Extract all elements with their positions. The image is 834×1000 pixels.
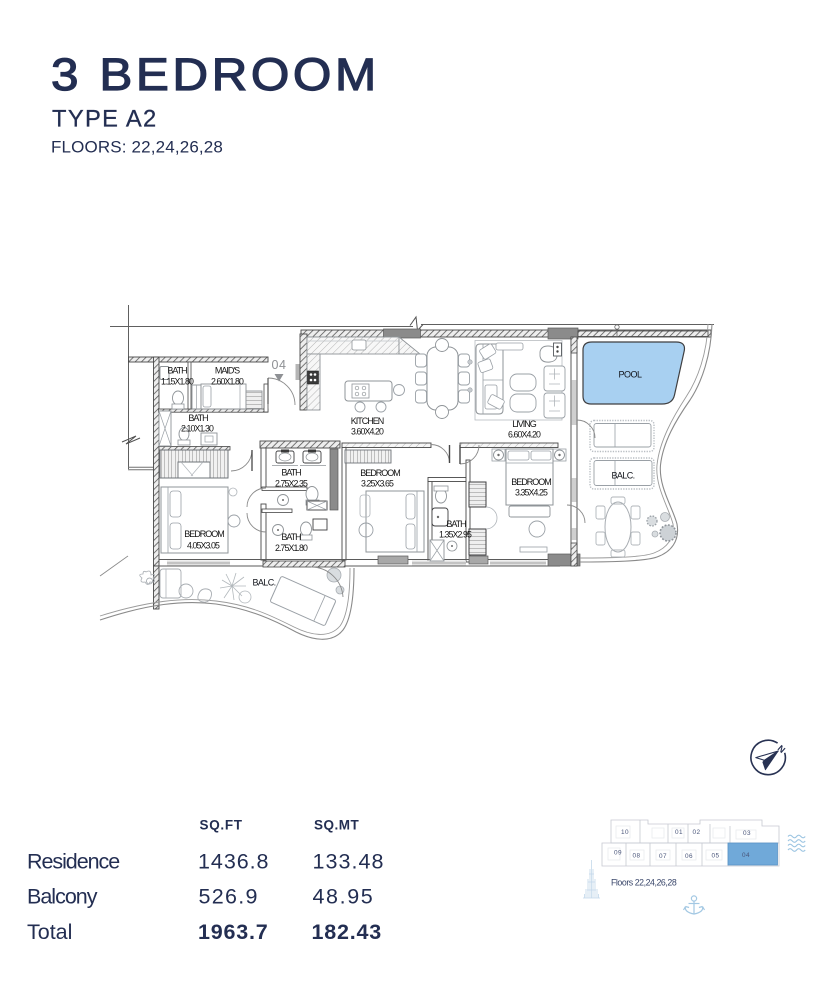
svg-text:6.60X4.20: 6.60X4.20 xyxy=(508,430,541,440)
svg-text:01: 01 xyxy=(675,829,683,836)
svg-text:1436.8: 1436.8 xyxy=(198,850,269,874)
svg-text:Residence: Residence xyxy=(27,850,119,874)
svg-text:3 BEDROOM: 3 BEDROOM xyxy=(51,50,380,100)
svg-text:LIVING: LIVING xyxy=(512,419,537,429)
svg-text:10: 10 xyxy=(621,829,629,836)
svg-text:2.75X1.80: 2.75X1.80 xyxy=(275,543,308,553)
svg-text:BALC.: BALC. xyxy=(611,471,634,481)
svg-text:3.60X4.20: 3.60X4.20 xyxy=(351,427,384,437)
svg-text:1.35X2.95: 1.35X2.95 xyxy=(439,530,472,540)
svg-text:09: 09 xyxy=(614,850,622,857)
svg-text:BEDROOM: BEDROOM xyxy=(511,477,551,487)
svg-text:04: 04 xyxy=(272,358,287,372)
svg-text:133.48: 133.48 xyxy=(313,850,385,874)
svg-text:FLOORS: 22,24,26,28: FLOORS: 22,24,26,28 xyxy=(51,138,223,157)
svg-text:3.25X3.65: 3.25X3.65 xyxy=(361,479,394,489)
svg-text:4.05X3.05: 4.05X3.05 xyxy=(187,541,220,551)
svg-text:BATH: BATH xyxy=(281,532,301,542)
svg-text:POOL: POOL xyxy=(618,370,642,380)
svg-text:06: 06 xyxy=(685,853,693,860)
svg-text:48.95: 48.95 xyxy=(313,885,375,909)
svg-text:3.35X4.25: 3.35X4.25 xyxy=(515,488,548,498)
svg-text:2.10X1.30: 2.10X1.30 xyxy=(181,424,214,434)
svg-text:Total: Total xyxy=(27,920,72,944)
svg-text:1963.7: 1963.7 xyxy=(198,920,269,944)
svg-text:SQ.FT: SQ.FT xyxy=(200,818,243,833)
svg-text:MAID'S: MAID'S xyxy=(215,366,240,376)
svg-text:SQ.MT: SQ.MT xyxy=(314,818,360,833)
svg-text:04: 04 xyxy=(742,852,750,859)
svg-text:2.60X1.80: 2.60X1.80 xyxy=(211,377,244,387)
svg-text:05: 05 xyxy=(712,853,720,860)
svg-text:BATH: BATH xyxy=(167,366,187,376)
svg-text:BATH: BATH xyxy=(446,519,466,529)
svg-text:BEDROOM: BEDROOM xyxy=(184,529,224,539)
svg-text:08: 08 xyxy=(633,853,641,860)
svg-text:BALC.: BALC. xyxy=(252,578,275,588)
svg-text:182.43: 182.43 xyxy=(312,920,383,944)
svg-text:02: 02 xyxy=(693,829,701,836)
svg-text:TYPE A2: TYPE A2 xyxy=(52,107,158,133)
svg-text:BEDROOM: BEDROOM xyxy=(360,468,400,478)
svg-text:526.9: 526.9 xyxy=(199,885,259,909)
svg-text:2.75X2.35: 2.75X2.35 xyxy=(275,479,308,489)
svg-text:BATH: BATH xyxy=(281,468,301,478)
svg-text:BATH: BATH xyxy=(188,413,208,423)
svg-text:KITCHEN: KITCHEN xyxy=(351,416,384,426)
svg-text:07: 07 xyxy=(659,853,667,860)
svg-text:Floors 22,24,26,28: Floors 22,24,26,28 xyxy=(611,878,677,888)
svg-text:Balcony: Balcony xyxy=(27,885,98,909)
svg-text:1.15X1.80: 1.15X1.80 xyxy=(161,377,194,387)
svg-text:03: 03 xyxy=(743,830,751,837)
